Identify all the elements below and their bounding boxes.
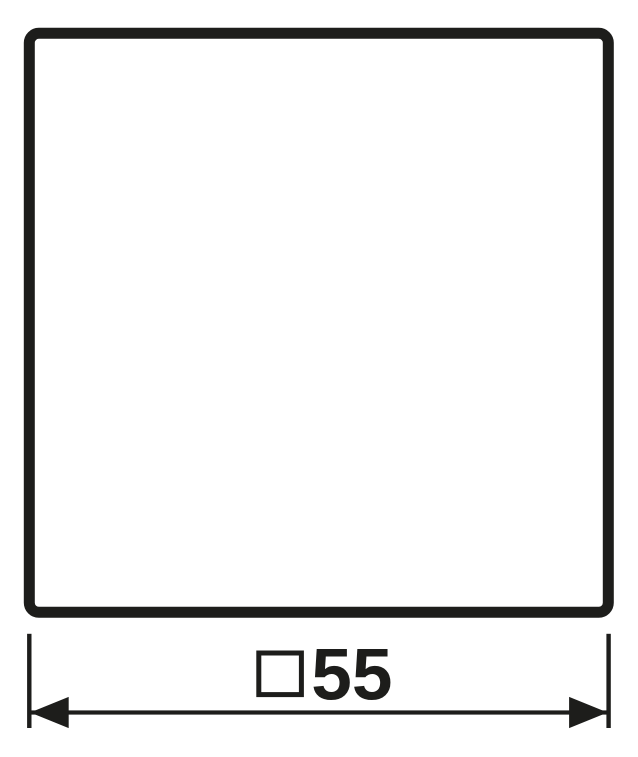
svg-text:55: 55	[311, 634, 392, 715]
